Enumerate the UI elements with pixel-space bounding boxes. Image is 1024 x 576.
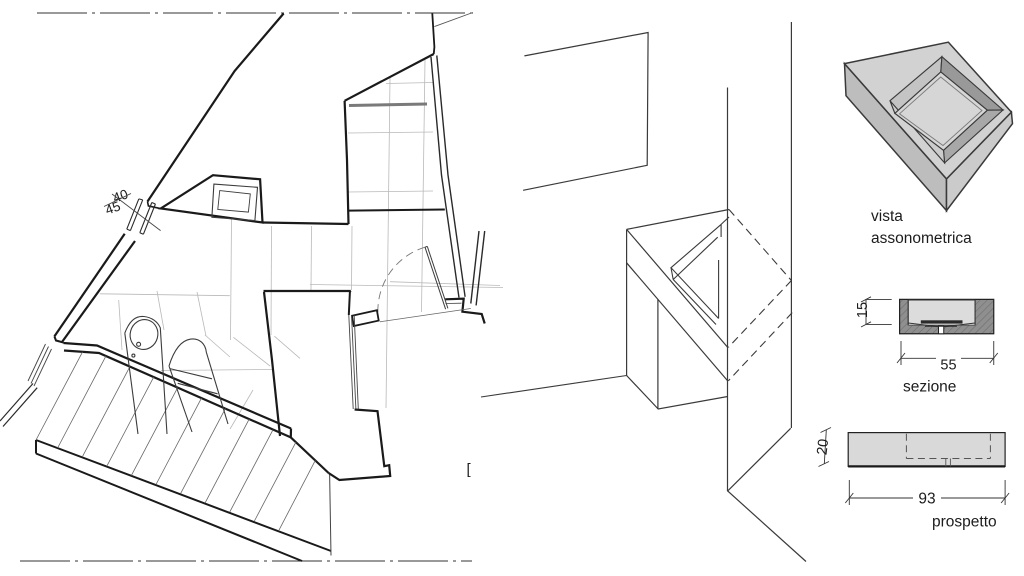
svg-text:20: 20 bbox=[814, 438, 832, 456]
svg-text:sezione: sezione bbox=[903, 379, 956, 396]
svg-text:vista: vista bbox=[871, 208, 903, 225]
svg-text:assonometrica: assonometrica bbox=[871, 230, 972, 247]
svg-text:prospetto: prospetto bbox=[932, 514, 997, 531]
svg-text:55: 55 bbox=[940, 358, 956, 374]
svg-text:15: 15 bbox=[855, 302, 871, 318]
svg-text:93: 93 bbox=[918, 491, 935, 508]
